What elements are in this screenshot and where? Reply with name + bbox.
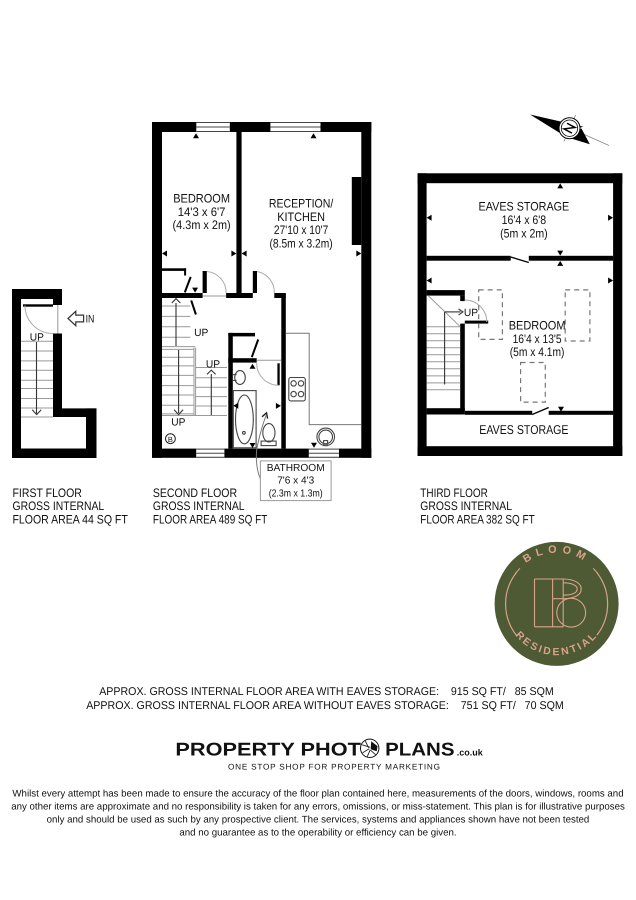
svg-text:GROSS INTERNAL: GROSS INTERNAL (13, 499, 105, 513)
svg-text:THIRD FLOOR: THIRD FLOOR (420, 486, 488, 500)
svg-text:any other items are approximat: any other items are approximate and no r… (11, 802, 625, 813)
svg-text:14'3 x 6'7: 14'3 x 6'7 (178, 205, 226, 219)
svg-text:27'10 x 10'7: 27'10 x 10'7 (274, 223, 329, 237)
svg-text:UP: UP (30, 331, 44, 343)
svg-text:UP: UP (206, 358, 220, 370)
svg-text:7'6 x 4'3: 7'6 x 4'3 (277, 476, 314, 487)
svg-text:FLOOR AREA 44 SQ FT: FLOOR AREA 44 SQ FT (13, 513, 129, 527)
svg-text:B: B (168, 435, 173, 444)
svg-text:IN: IN (86, 314, 95, 326)
svg-text:UP: UP (194, 327, 208, 339)
svg-text:.co.uk: .co.uk (457, 747, 484, 757)
svg-text:APPROX. GROSS INTERNAL FLOOR A: APPROX. GROSS INTERNAL FLOOR AREA WITH E… (99, 686, 554, 698)
svg-text:FLOOR AREA 382 SQ FT: FLOOR AREA 382 SQ FT (420, 513, 535, 527)
svg-text:SECOND FLOOR: SECOND FLOOR (153, 486, 237, 500)
svg-text:16'4 x 13'5: 16'4 x 13'5 (513, 332, 562, 346)
svg-text:(5m x 4.1m): (5m x 4.1m) (510, 345, 565, 359)
svg-text:(4.3m x 2m): (4.3m x 2m) (173, 218, 231, 232)
svg-text:(8.5m x 3.2m): (8.5m x 3.2m) (270, 236, 333, 250)
svg-text:PROPERTY PHOT: PROPERTY PHOT (175, 739, 361, 760)
svg-text:(5m x 2m): (5m x 2m) (500, 226, 548, 240)
svg-text:BEDROOM: BEDROOM (509, 319, 566, 333)
svg-text:UP: UP (171, 417, 185, 429)
svg-text:BATHROOM: BATHROOM (267, 463, 325, 474)
svg-text:Whilst every attempt has been: Whilst every attempt has been made to en… (12, 789, 623, 800)
svg-text:PLANS: PLANS (385, 739, 454, 760)
svg-text:GROSS INTERNAL: GROSS INTERNAL (420, 499, 512, 513)
svg-text:EAVES STORAGE: EAVES STORAGE (479, 200, 570, 214)
svg-text:only and should be used as suc: only and should be used as such by any p… (47, 815, 590, 826)
svg-text:RECEPTION/: RECEPTION/ (269, 197, 334, 211)
svg-text:GROSS INTERNAL: GROSS INTERNAL (153, 499, 245, 513)
svg-text:and no guarantee as to the ope: and no guarantee as to the operability o… (179, 828, 456, 839)
svg-text:(2.3m x 1.3m): (2.3m x 1.3m) (269, 488, 323, 499)
svg-text:APPROX. GROSS INTERNAL FLOOR A: APPROX. GROSS INTERNAL FLOOR AREA WITHOU… (86, 700, 564, 712)
svg-text:BEDROOM: BEDROOM (173, 192, 230, 206)
svg-text:UP: UP (464, 307, 478, 319)
svg-text:FLOOR AREA 489 SQ FT: FLOOR AREA 489 SQ FT (153, 513, 268, 527)
svg-text:ONE STOP SHOP FOR PROPERTY MAR: ONE STOP SHOP FOR PROPERTY MARKETING (228, 763, 442, 772)
svg-text:16'4 x 6'8: 16'4 x 6'8 (502, 213, 547, 227)
svg-text:EAVES STORAGE: EAVES STORAGE (479, 422, 568, 437)
svg-text:KITCHEN: KITCHEN (277, 210, 325, 224)
svg-text:FIRST FLOOR: FIRST FLOOR (13, 486, 83, 500)
